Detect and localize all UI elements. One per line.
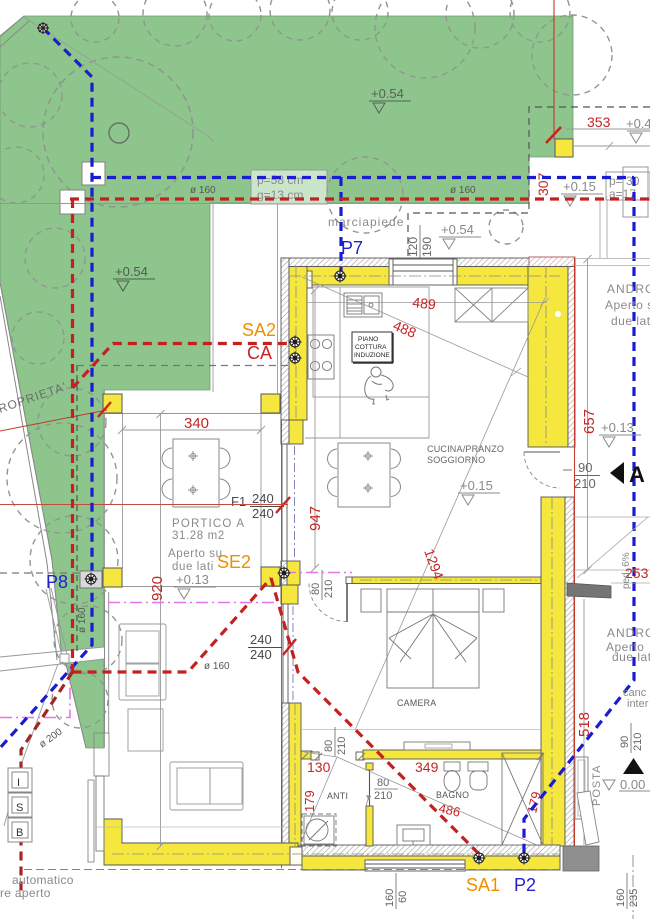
svg-text:I: I: [17, 777, 20, 789]
svg-text:SE2: SE2: [217, 552, 251, 572]
svg-text:+0.13: +0.13: [601, 420, 634, 435]
svg-text:0.00: 0.00: [620, 777, 645, 792]
svg-text:SA2: SA2: [242, 320, 276, 340]
svg-text:CUCINA/PRANZO: CUCINA/PRANZO: [427, 444, 504, 454]
svg-text:235: 235: [628, 889, 640, 907]
svg-text:80: 80: [323, 740, 335, 752]
svg-text:210: 210: [374, 790, 392, 802]
svg-text:+0.15: +0.15: [563, 179, 596, 194]
svg-text:+0.15: +0.15: [460, 478, 493, 493]
svg-text:349: 349: [415, 759, 439, 775]
svg-text:ø 160: ø 160: [77, 607, 88, 633]
svg-text:947: 947: [307, 506, 324, 531]
svg-text:90: 90: [578, 460, 592, 475]
svg-text:240: 240: [250, 647, 272, 662]
svg-text:SA1: SA1: [466, 875, 500, 895]
svg-text:A: A: [629, 462, 645, 487]
svg-text:ø 160: ø 160: [190, 185, 216, 196]
svg-text:657: 657: [581, 409, 598, 434]
svg-text:240: 240: [252, 491, 274, 506]
svg-text:F1: F1: [231, 494, 246, 509]
svg-text:130: 130: [307, 759, 331, 775]
svg-text:P7: P7: [341, 238, 363, 258]
svg-text:automatico: automatico: [12, 873, 74, 887]
svg-text:ANDRONE: ANDRONE: [607, 282, 650, 296]
svg-text:353: 353: [587, 114, 611, 130]
svg-text:210: 210: [323, 580, 335, 598]
svg-text:CAMERA: CAMERA: [397, 698, 436, 708]
svg-text:POSTA: POSTA: [591, 765, 603, 806]
svg-text:190: 190: [420, 237, 434, 257]
svg-text:p=58 cm: p=58 cm: [257, 173, 303, 187]
svg-text:ped. 6%: ped. 6%: [621, 552, 632, 589]
svg-text:+0.54: +0.54: [115, 264, 148, 279]
svg-text:ANDRONE: ANDRONE: [607, 626, 650, 640]
svg-text:ø 160: ø 160: [450, 185, 476, 196]
svg-text:S: S: [16, 802, 23, 814]
svg-text:60: 60: [397, 891, 409, 903]
svg-text:240: 240: [252, 506, 274, 521]
svg-text:due lati: due lati: [172, 561, 214, 573]
svg-text:ANTI: ANTI: [327, 791, 348, 801]
svg-text:re aperto: re aperto: [0, 886, 51, 900]
svg-text:160: 160: [615, 889, 627, 907]
svg-text:PORTICO A: PORTICO A: [172, 518, 245, 530]
svg-text:PIANO: PIANO: [358, 336, 378, 343]
svg-text:210: 210: [574, 476, 596, 491]
svg-text:920: 920: [149, 576, 166, 601]
svg-text:90: 90: [619, 736, 631, 748]
svg-text:240: 240: [250, 632, 272, 647]
svg-text:due lati: due lati: [612, 650, 650, 664]
svg-text:340: 340: [184, 415, 209, 432]
svg-text:ø 160: ø 160: [204, 661, 230, 672]
svg-text:+0.4: +0.4: [626, 116, 650, 131]
svg-text:+0.13: +0.13: [176, 572, 209, 587]
svg-text:CA: CA: [247, 343, 272, 363]
svg-text:SOGGIORNO: SOGGIORNO: [427, 455, 485, 465]
svg-text:due lati: due lati: [611, 314, 650, 328]
svg-text:489: 489: [412, 294, 437, 312]
svg-text:B: B: [16, 827, 23, 839]
svg-text:210: 210: [336, 737, 348, 755]
svg-text:Aperto su: Aperto su: [168, 548, 223, 560]
svg-text:+0.54: +0.54: [441, 222, 474, 237]
svg-text:inter: inter: [627, 698, 649, 710]
svg-text:31.28 m2: 31.28 m2: [172, 530, 225, 542]
svg-text:120: 120: [406, 237, 420, 257]
svg-text:P8: P8: [46, 572, 68, 592]
svg-text:P2: P2: [514, 875, 536, 895]
svg-text:160: 160: [384, 889, 396, 907]
svg-text:80: 80: [310, 583, 322, 595]
svg-text:COTTURA: COTTURA: [355, 344, 387, 351]
svg-text:+0.54: +0.54: [371, 86, 404, 101]
svg-text:210: 210: [632, 733, 644, 751]
svg-text:INDUZIONE: INDUZIONE: [354, 352, 390, 359]
svg-text:Aperto s: Aperto s: [605, 298, 650, 312]
